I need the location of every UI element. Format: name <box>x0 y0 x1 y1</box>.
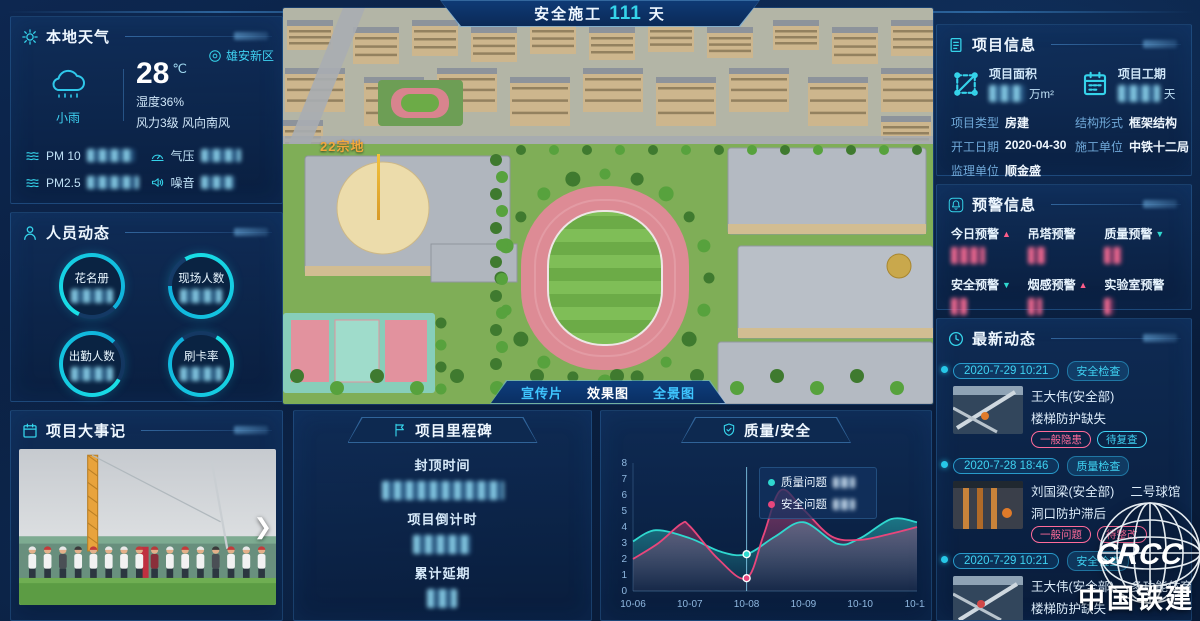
feed-thumbnail <box>953 481 1023 529</box>
document-icon <box>947 36 965 54</box>
warning-today: 今日预警 <box>951 225 1024 264</box>
feed-category-badge: 安全检查 <box>1067 361 1129 381</box>
feed-person: 王大伟(安全部) <box>1031 576 1114 595</box>
trend-arrow-icon <box>1079 280 1088 290</box>
safe-days-count: 111 <box>609 3 642 25</box>
warning-crane: 吊塔预警 <box>1028 225 1101 264</box>
milestone-topping-time: 封顶时间 <box>382 455 504 500</box>
feed-title: 最新动态 <box>972 328 1036 349</box>
weather-panel: 本地天气 雄安新区 小雨 28 <box>10 16 283 204</box>
ring-label: 刷卡率 <box>184 348 219 364</box>
ring-label: 花名册 <box>75 270 110 286</box>
trend-arrow-icon <box>1002 280 1011 290</box>
stat-unit: 万m² <box>1029 86 1054 102</box>
field-supervisor: 监理单位 顺金盛 <box>951 162 1069 179</box>
metric-label: 气压 <box>171 147 195 164</box>
area-measure-icon <box>951 69 981 99</box>
haze-icon <box>25 148 40 163</box>
feed-location: 多功能体育馆 <box>1130 576 1192 595</box>
svg-text:10-09: 10-09 <box>791 599 817 610</box>
dashboard-root: 22宗地 安全施工 111 天 宣传片 效果图 全景图 本地天气 <box>0 0 1200 621</box>
blurred-value <box>180 289 222 303</box>
plot-label[interactable]: 22宗地 <box>320 136 364 155</box>
milestone-countdown: 项目倒计时 <box>407 509 477 554</box>
quality-series-label: 质量问题 <box>781 474 827 490</box>
sun-icon <box>21 28 39 46</box>
ring-label: 现场人数 <box>178 270 224 286</box>
metric-label: 噪音 <box>171 174 195 191</box>
blurred-value <box>201 176 235 189</box>
scene-tab-bar: 宣传片 效果图 全景图 <box>490 380 726 404</box>
feed-person: 刘国梁(安全部) <box>1031 481 1114 500</box>
metric-noise: 噪音 <box>150 174 269 191</box>
warning-safety: 安全预警 <box>951 276 1024 315</box>
trend-arrow-icon <box>1002 229 1011 239</box>
ring-label: 出勤人数 <box>69 348 115 364</box>
event-photo: ❯ <box>19 449 276 605</box>
safe-days-banner: 安全施工 111 天 <box>440 0 760 27</box>
svg-text:1: 1 <box>621 570 627 581</box>
feed-panel: 最新动态 2020-7-29 10:21 安全检查 王大伟(安全部) 楼梯防护缺… <box>936 318 1192 621</box>
stat-duration: 项目工期 天 <box>1080 65 1176 102</box>
region-label: 雄安新区 <box>226 47 274 64</box>
flag-icon <box>392 422 408 438</box>
plot-pin-marker <box>377 154 380 220</box>
ring-swipe-rate: 刷卡率 <box>168 331 234 397</box>
haze-icon <box>25 175 40 190</box>
header-deco <box>1143 40 1177 48</box>
blurred-value <box>427 589 457 608</box>
chart-tooltip: 质量问题 安全问题 <box>759 467 877 519</box>
calendar-icon <box>1080 69 1110 99</box>
location-pin-icon <box>208 49 222 63</box>
bell-icon <box>947 196 965 214</box>
svg-text:7: 7 <box>621 474 627 485</box>
temperature-unit: ℃ <box>172 61 187 77</box>
svg-text:8: 8 <box>621 458 627 469</box>
header-deco <box>234 426 268 434</box>
svg-text:6: 6 <box>621 490 627 501</box>
feed-issue: 楼梯防护缺失 <box>1031 598 1181 617</box>
header-deco <box>1143 200 1177 208</box>
milestone-title: 项目里程碑 <box>415 420 493 441</box>
speaker-icon <box>150 175 165 190</box>
blurred-value <box>201 149 241 162</box>
svg-text:10-07: 10-07 <box>677 599 703 610</box>
field-start-date: 开工日期 2020-04-30 <box>951 138 1069 155</box>
ring-roster: 花名册 <box>59 253 125 319</box>
milestone-label: 封顶时间 <box>414 455 470 474</box>
blurred-value <box>71 289 113 303</box>
feed-time: 2020-7-28 18:46 <box>953 458 1059 474</box>
blurred-value <box>1118 85 1160 102</box>
stat-label: 项目工期 <box>1118 65 1176 82</box>
chart-title: 质量/安全 <box>744 420 811 441</box>
svg-text:10-08: 10-08 <box>734 599 760 610</box>
svg-text:10-10: 10-10 <box>847 599 873 610</box>
stat-area: 项目面积 万m² <box>951 65 1054 102</box>
quality-safety-panel: 质量/安全 01234567810-0610-0710-0810-0910-10… <box>600 410 932 621</box>
blurred-value <box>382 481 504 500</box>
quality-series-dot <box>768 479 775 486</box>
field-contractor: 施工单位 中铁十二局 <box>1075 138 1189 155</box>
region-selector[interactable]: 雄安新区 <box>208 47 274 64</box>
feed-item[interactable]: 2020-7-28 18:46 质量检查 刘国梁(安全部)二号球馆 洞口防护滞后… <box>953 456 1181 543</box>
metric-label: PM2.5 <box>46 176 81 190</box>
aerial-render-image <box>283 8 933 404</box>
milestone-panel: 项目里程碑 封顶时间 项目倒计时 累计延期 <box>293 410 592 621</box>
metric-pm10: PM 10 <box>25 147 144 164</box>
project-info-panel: 项目信息 项目面积 万m² 项目工期 <box>936 24 1192 176</box>
wind-text: 风力3级 风向南风 <box>136 114 230 131</box>
metric-pm25: PM2.5 <box>25 174 144 191</box>
tab-rendering[interactable]: 效果图 <box>587 383 629 402</box>
personnel-title: 人员动态 <box>46 222 110 243</box>
milestone-label: 累计延期 <box>414 563 470 582</box>
feed-tag: 待整改 <box>1097 526 1147 543</box>
safety-series-dot <box>768 501 775 508</box>
events-panel: 项目大事记 ❯ <box>10 410 283 621</box>
tab-panorama[interactable]: 全景图 <box>653 383 695 402</box>
svg-text:3: 3 <box>621 538 627 549</box>
blurred-value <box>87 149 135 162</box>
svg-text:2: 2 <box>621 554 627 565</box>
blurred-value <box>87 176 139 189</box>
clock-icon <box>947 330 965 348</box>
events-title: 项目大事记 <box>46 420 126 441</box>
warnings-panel: 预警信息 今日预警 吊塔预警 质量预警 安全预警 <box>936 184 1192 310</box>
blurred-value <box>71 367 113 381</box>
gauge-icon <box>150 148 165 163</box>
feed-issue: 楼梯防护缺失 <box>1031 408 1147 427</box>
scene-view[interactable]: 22宗地 <box>283 8 933 404</box>
warning-lab: 实验室预警 <box>1104 276 1177 315</box>
header-deco <box>234 32 268 40</box>
header-deco <box>1143 334 1177 342</box>
blurred-value <box>989 85 1025 102</box>
metric-label: PM 10 <box>46 149 81 163</box>
milestone-delay: 累计延期 <box>414 563 470 608</box>
feed-person: 王大伟(安全部) <box>1031 386 1114 405</box>
svg-text:10-06: 10-06 <box>620 599 646 610</box>
stat-unit: 天 <box>1164 86 1176 102</box>
weather-condition: 小雨 <box>25 109 111 126</box>
metric-pressure: 气压 <box>150 147 269 164</box>
feed-item[interactable]: 2020-7-29 10:21 安全检查 王大伟(安全部) 楼梯防护缺失 一般隐… <box>953 361 1181 448</box>
calendar-icon <box>21 422 39 440</box>
stat-label: 项目面积 <box>989 65 1054 82</box>
blurred-value <box>951 247 985 264</box>
blurred-value <box>951 298 967 315</box>
feed-category-badge: 安全检查 <box>1067 551 1129 571</box>
field-structure: 结构形式 框架结构 <box>1075 114 1189 131</box>
safe-days-suffix: 天 <box>649 3 666 24</box>
blurred-value <box>833 499 855 510</box>
warning-quality: 质量预警 <box>1104 225 1177 264</box>
blurred-value <box>833 477 855 488</box>
blurred-value <box>180 367 222 381</box>
humidity-text: 湿度36% <box>136 93 230 110</box>
weather-title: 本地天气 <box>46 26 110 47</box>
svg-text:4: 4 <box>621 522 627 533</box>
feed-tag: 待复查 <box>1097 431 1147 448</box>
feed-thumbnail <box>953 386 1023 434</box>
personnel-panel: 人员动态 花名册 现场人数 出勤人数 刷卡率 <box>10 212 283 402</box>
trend-arrow-icon <box>1155 229 1164 239</box>
feed-tag: 一般隐患 <box>1031 431 1091 448</box>
feed-thumbnail <box>953 576 1023 621</box>
project-info-title: 项目信息 <box>972 34 1036 55</box>
svg-text:10-11: 10-11 <box>905 599 925 610</box>
shield-check-icon <box>721 422 737 438</box>
milestone-label: 项目倒计时 <box>407 509 477 528</box>
ring-attendance: 出勤人数 <box>59 331 125 397</box>
group-photo-image <box>19 449 276 605</box>
feed-tag: 一般问题 <box>1031 526 1091 543</box>
feed-location: 二号球馆 <box>1130 481 1180 500</box>
feed-time: 2020-7-29 10:21 <box>953 553 1059 569</box>
feed-item[interactable]: 2020-7-29 10:21 安全检查 王大伟(安全部)多功能体育馆 楼梯防护… <box>953 551 1181 621</box>
feed-category-badge: 质量检查 <box>1067 456 1129 476</box>
temperature-value: 28 <box>136 59 169 89</box>
safety-series-label: 安全问题 <box>781 496 827 512</box>
chevron-right-icon[interactable]: ❯ <box>254 516 272 538</box>
svg-text:5: 5 <box>621 506 627 517</box>
blurred-value <box>1104 247 1122 264</box>
person-icon <box>21 224 39 242</box>
safe-days-prefix: 安全施工 <box>534 3 602 24</box>
cloud-rain-icon <box>46 64 90 102</box>
blurred-value <box>1104 298 1114 315</box>
blurred-value <box>1028 247 1046 264</box>
divider <box>123 69 124 121</box>
warnings-title: 预警信息 <box>972 194 1036 215</box>
field-project-type: 项目类型 房建 <box>951 114 1069 131</box>
tab-promo-video[interactable]: 宣传片 <box>521 383 563 402</box>
svg-text:0: 0 <box>621 586 627 597</box>
feed-issue: 洞口防护滞后 <box>1031 503 1180 522</box>
header-deco <box>234 228 268 236</box>
warning-smoke: 烟感预警 <box>1028 276 1101 315</box>
blurred-value <box>1028 298 1042 315</box>
blurred-value <box>413 535 471 554</box>
feed-time: 2020-7-29 10:21 <box>953 363 1059 379</box>
ring-onsite: 现场人数 <box>168 253 234 319</box>
